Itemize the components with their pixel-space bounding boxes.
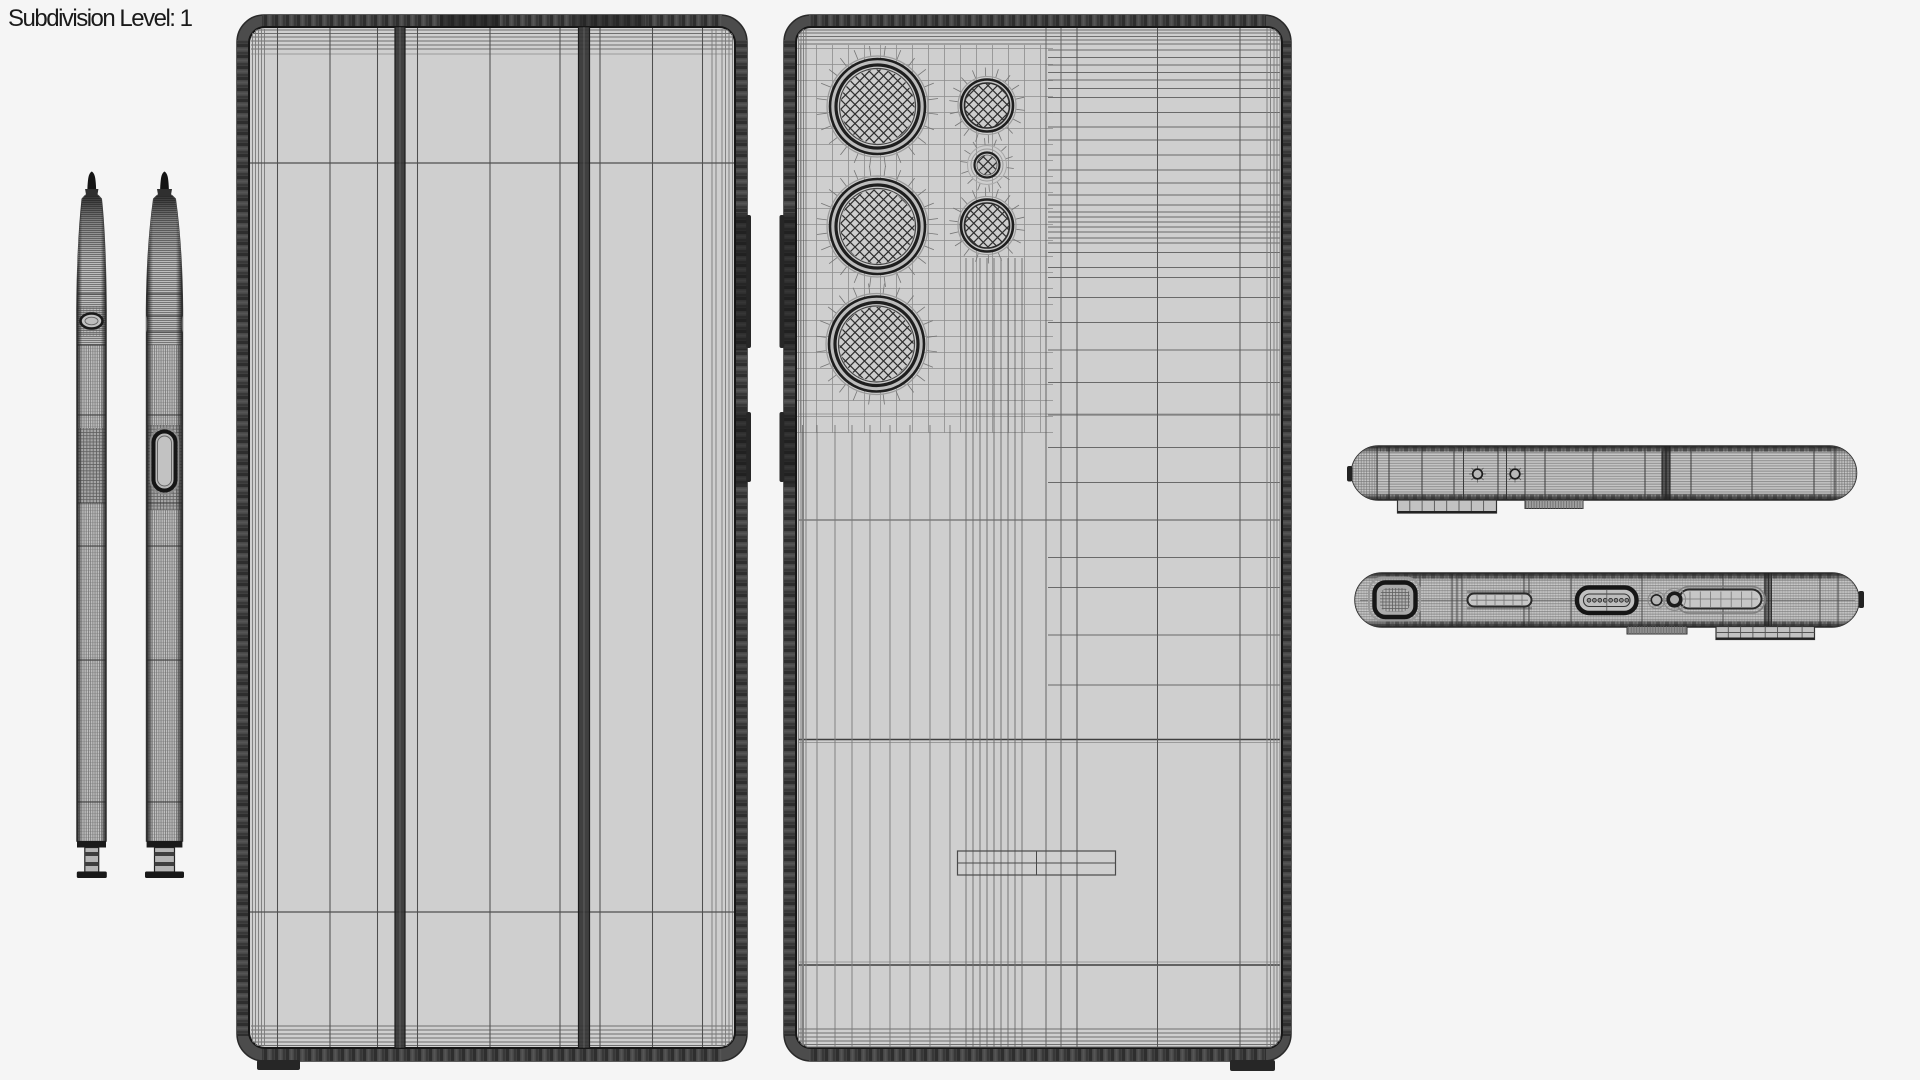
svg-text:Subdivision Level: 1: Subdivision Level: 1 xyxy=(8,5,193,32)
